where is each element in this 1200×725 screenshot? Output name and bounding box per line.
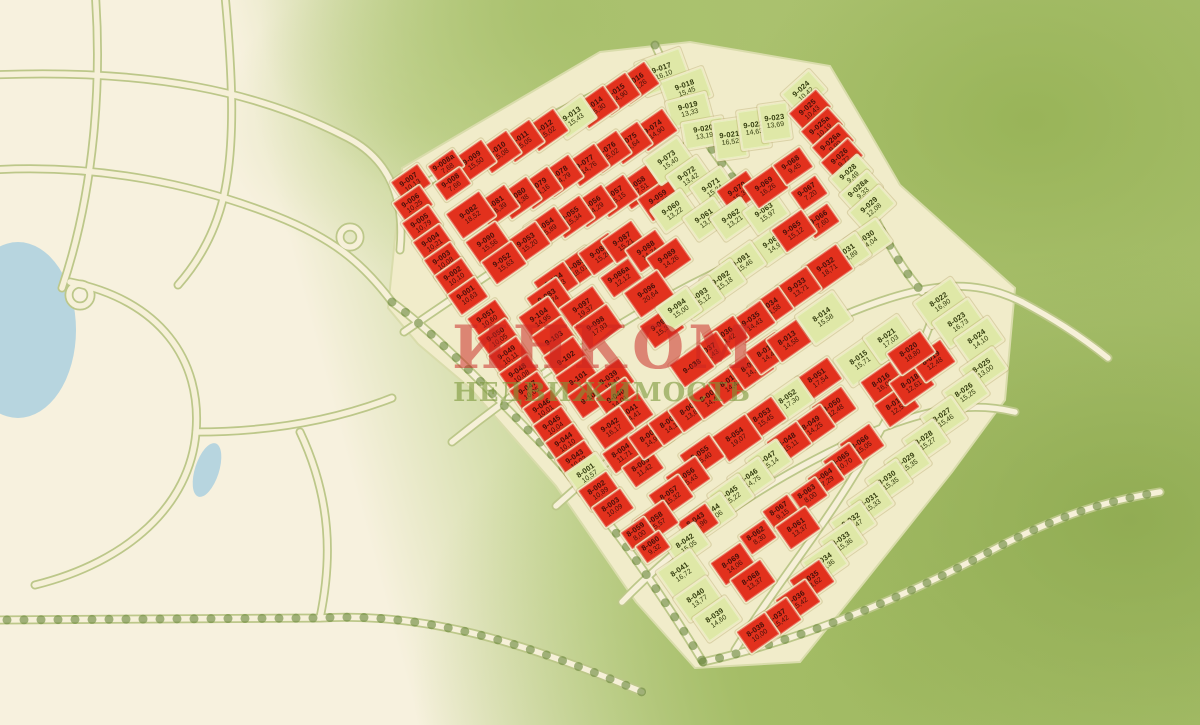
site-plan-map: 9-01716,109-01815,459-01913,339-02013,19… (0, 0, 1200, 725)
plot-9-023[interactable]: 9-02313,69 (759, 102, 792, 142)
plot-field: 9-01716,109-01815,459-01913,339-02013,19… (0, 0, 1200, 725)
plot-area-label: 16,52 (721, 138, 739, 148)
plot-area-label: 13,69 (766, 121, 784, 131)
plot-area-label: 13,19 (695, 131, 714, 142)
plot-id-label: 9-038 (681, 357, 702, 375)
